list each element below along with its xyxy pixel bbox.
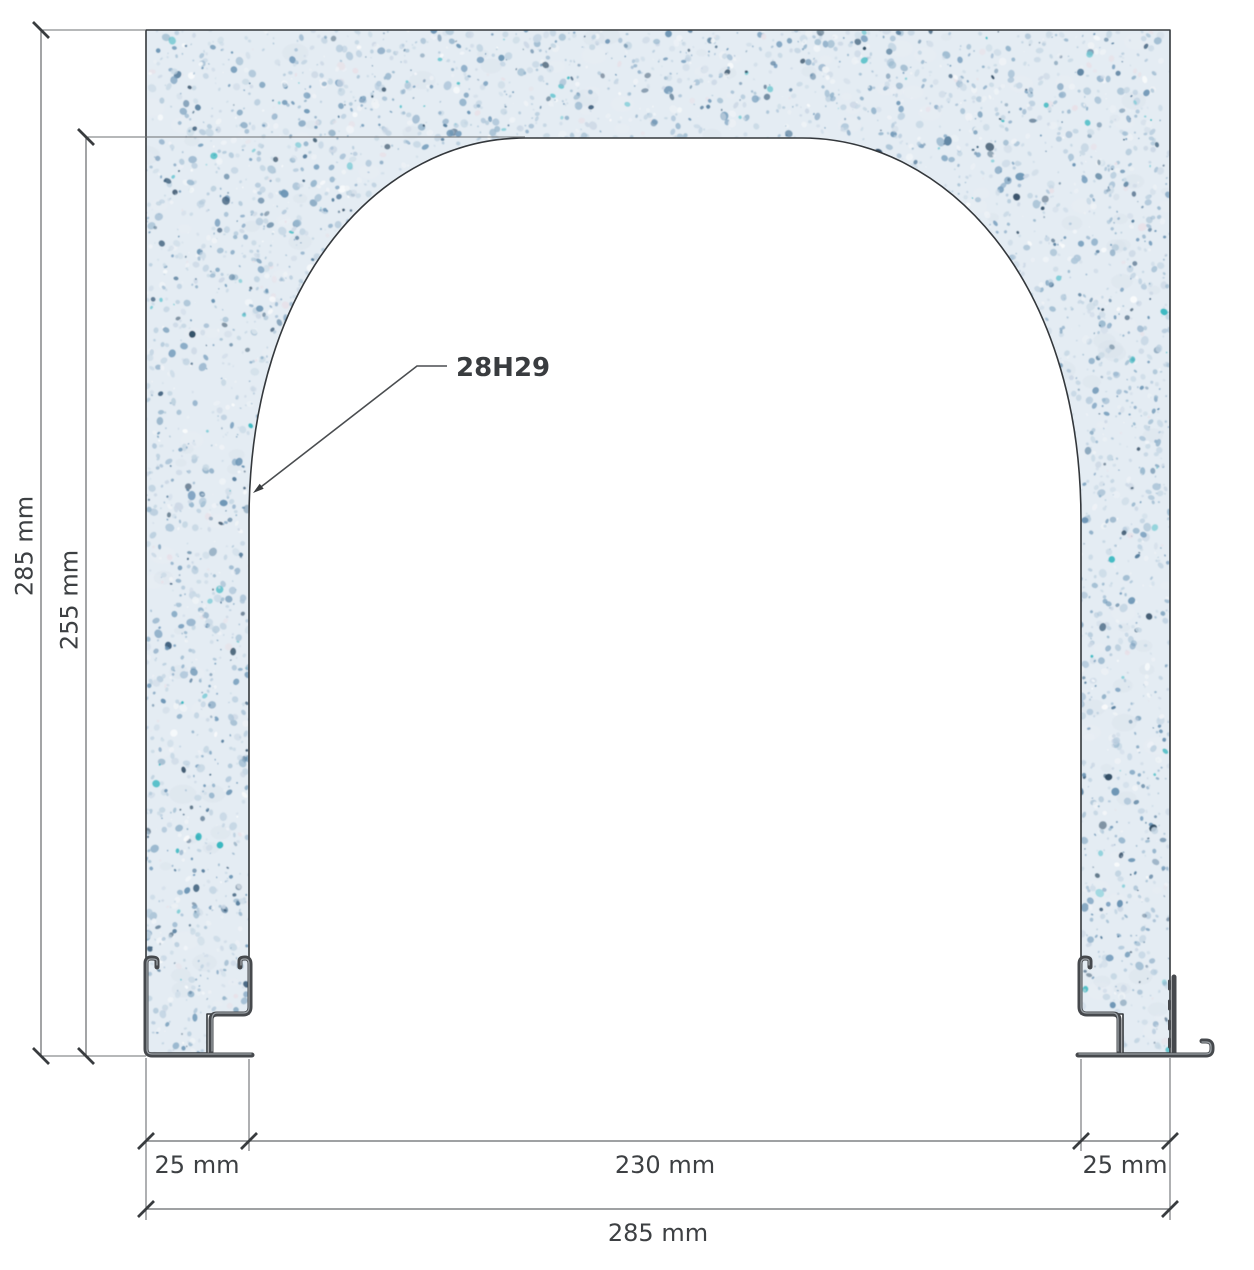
- leader-line: [257, 366, 447, 490]
- label-left-thickness: 25 mm: [155, 1151, 240, 1179]
- label-opening-height: 255 mm: [55, 550, 83, 650]
- label-right-thickness: 25 mm: [1083, 1151, 1168, 1179]
- panel-cross-section: [133, 26, 1177, 1057]
- part-code-label: 28H29: [456, 353, 550, 383]
- label-overall-width: 285 mm: [608, 1219, 708, 1247]
- part-callout: 28H29: [253, 353, 550, 493]
- label-overall-height: 285 mm: [10, 496, 38, 596]
- panel-shape: [146, 30, 1170, 1053]
- technical-diagram: 285 mm 255 mm 25 mm 230 mm 25 mm 285 mm …: [0, 0, 1254, 1270]
- label-opening-width: 230 mm: [615, 1151, 715, 1179]
